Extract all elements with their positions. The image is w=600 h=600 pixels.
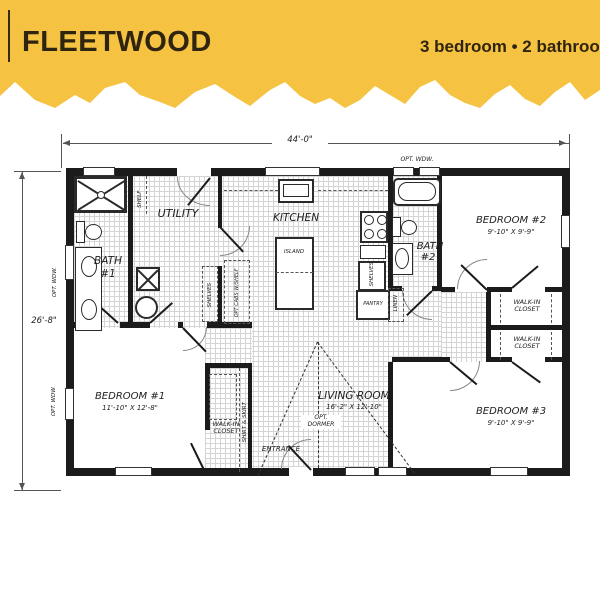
label-shelf: SHELF — [137, 184, 143, 214]
room-label-utility: UTILITY — [148, 208, 208, 221]
label-shirt-skirt: SHIRT & SKIRT — [242, 391, 248, 453]
dim-line-left — [22, 172, 23, 490]
bed-bath-summary: 3 bedroom • 2 bathroom — [420, 37, 600, 57]
window-optional — [419, 167, 440, 176]
room-dims-living: 16'-2" X 12'-10" — [314, 403, 394, 411]
room-dims-bedroom2: 9'-10" X 9'-9" — [461, 228, 561, 236]
door-opening-utility — [177, 167, 211, 176]
page-title: FLEETWOOD — [22, 26, 212, 59]
label-opt-cabs: OPT CABS W/SHELF — [235, 262, 241, 324]
shirt-skirt-line — [239, 368, 240, 472]
window — [83, 167, 115, 176]
sink — [81, 299, 97, 320]
window-optional — [65, 388, 74, 420]
wall-bedroom2-bottom — [545, 287, 562, 292]
floor-hall-bedrooms — [441, 292, 486, 362]
room-label-bedroom1: BEDROOM #1 — [80, 391, 180, 403]
wall-closet-divider — [486, 325, 562, 330]
toilet-bowl — [401, 220, 417, 235]
window-optional — [65, 245, 74, 280]
arrow-down-icon — [19, 483, 25, 490]
burner — [377, 229, 387, 239]
dim-width: 44'-0" — [272, 136, 328, 146]
room-dims-bedroom1: 11'-10" X 12'-8" — [80, 404, 180, 412]
room-label-kitchen: KITCHEN — [261, 212, 331, 224]
dim-extension — [569, 134, 570, 168]
room-label-living: LIVING ROOM — [314, 390, 394, 402]
wall-utility-right — [218, 176, 222, 228]
room-label-bath2-num: #2 — [406, 252, 450, 264]
label-walk-in-closet: WALK-IN CLOSET — [496, 299, 558, 314]
room-dims-bedroom3: 9'-10" X 9'-9" — [461, 419, 561, 427]
overhead-cabinets-dashed — [318, 190, 388, 191]
toilet-tank — [392, 217, 401, 237]
shelf-line — [146, 176, 147, 214]
label-walk-in-closet: WALK-IN CLOSET — [496, 336, 558, 351]
wall-closet1-top — [205, 363, 252, 368]
window — [490, 467, 528, 476]
label-shelves: SHELVES — [207, 276, 213, 314]
header-accent-line — [8, 10, 10, 62]
wall-bath1-utility — [128, 176, 133, 322]
arrow-left-icon — [63, 140, 70, 146]
dim-extension — [14, 490, 61, 491]
closet-shelf — [209, 374, 237, 420]
window — [561, 215, 570, 248]
island — [275, 237, 314, 310]
wall-bedroom2-bottom — [441, 287, 455, 292]
label-pantry: PANTRY — [356, 302, 390, 308]
label-shelves: SHELVES — [369, 255, 375, 293]
label-island: ISLAND — [274, 249, 314, 255]
island-divider — [276, 272, 313, 273]
label-entrance: ENTRANCE — [252, 445, 310, 453]
room-label-bedroom2: BEDROOM #2 — [461, 215, 561, 227]
bathtub-basin — [398, 182, 436, 201]
arrow-right-icon — [559, 140, 566, 146]
screenshot: FLEETWOOD 3 bedroom • 2 bathroom 44'-0" … — [0, 0, 600, 600]
label-opt-dormer: OPT. DORMER — [301, 415, 341, 429]
burner — [364, 215, 374, 225]
wall-utility-right — [218, 266, 222, 322]
label-linen: LINEN — [393, 286, 399, 320]
burner — [364, 229, 374, 239]
label-opt-window: OPT. WDW. — [51, 380, 57, 422]
dryer — [135, 296, 158, 319]
label-opt-window: OPT. WDW. — [52, 261, 58, 303]
window — [115, 467, 152, 476]
toilet-tank — [76, 221, 85, 243]
room-label-bath1: BATH — [86, 255, 130, 267]
room-label-bath1-num: #1 — [86, 268, 130, 280]
overhead-cabinets-dashed — [224, 190, 278, 191]
wall-bedroom3-top — [392, 357, 450, 362]
window — [265, 167, 320, 176]
dim-depth: 26'-8" — [24, 317, 64, 327]
window — [378, 467, 407, 476]
arrow-up-icon — [19, 172, 25, 179]
toilet-bowl — [85, 224, 102, 240]
dim-extension — [61, 134, 62, 168]
label-opt-window: OPT. WDW. — [395, 157, 439, 164]
room-label-bath2: BATH — [408, 241, 452, 253]
wall-bedroom3-left — [388, 362, 393, 468]
kitchen-sink-basin — [283, 184, 309, 197]
shower-drain — [97, 191, 105, 199]
wall-hall — [120, 322, 150, 328]
wall-bedroom3-top — [545, 357, 562, 362]
window-optional — [393, 167, 414, 176]
burner — [377, 215, 387, 225]
window — [345, 467, 375, 476]
room-label-bedroom3: BEDROOM #3 — [461, 406, 561, 418]
wall-exterior-left — [66, 168, 74, 476]
